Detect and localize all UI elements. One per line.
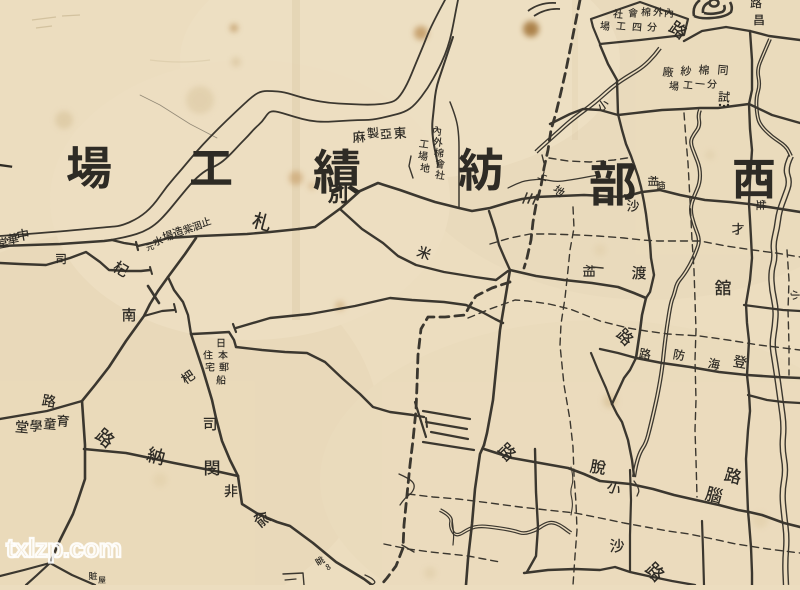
svg-text:txlzp.com: txlzp.com <box>6 533 121 563</box>
